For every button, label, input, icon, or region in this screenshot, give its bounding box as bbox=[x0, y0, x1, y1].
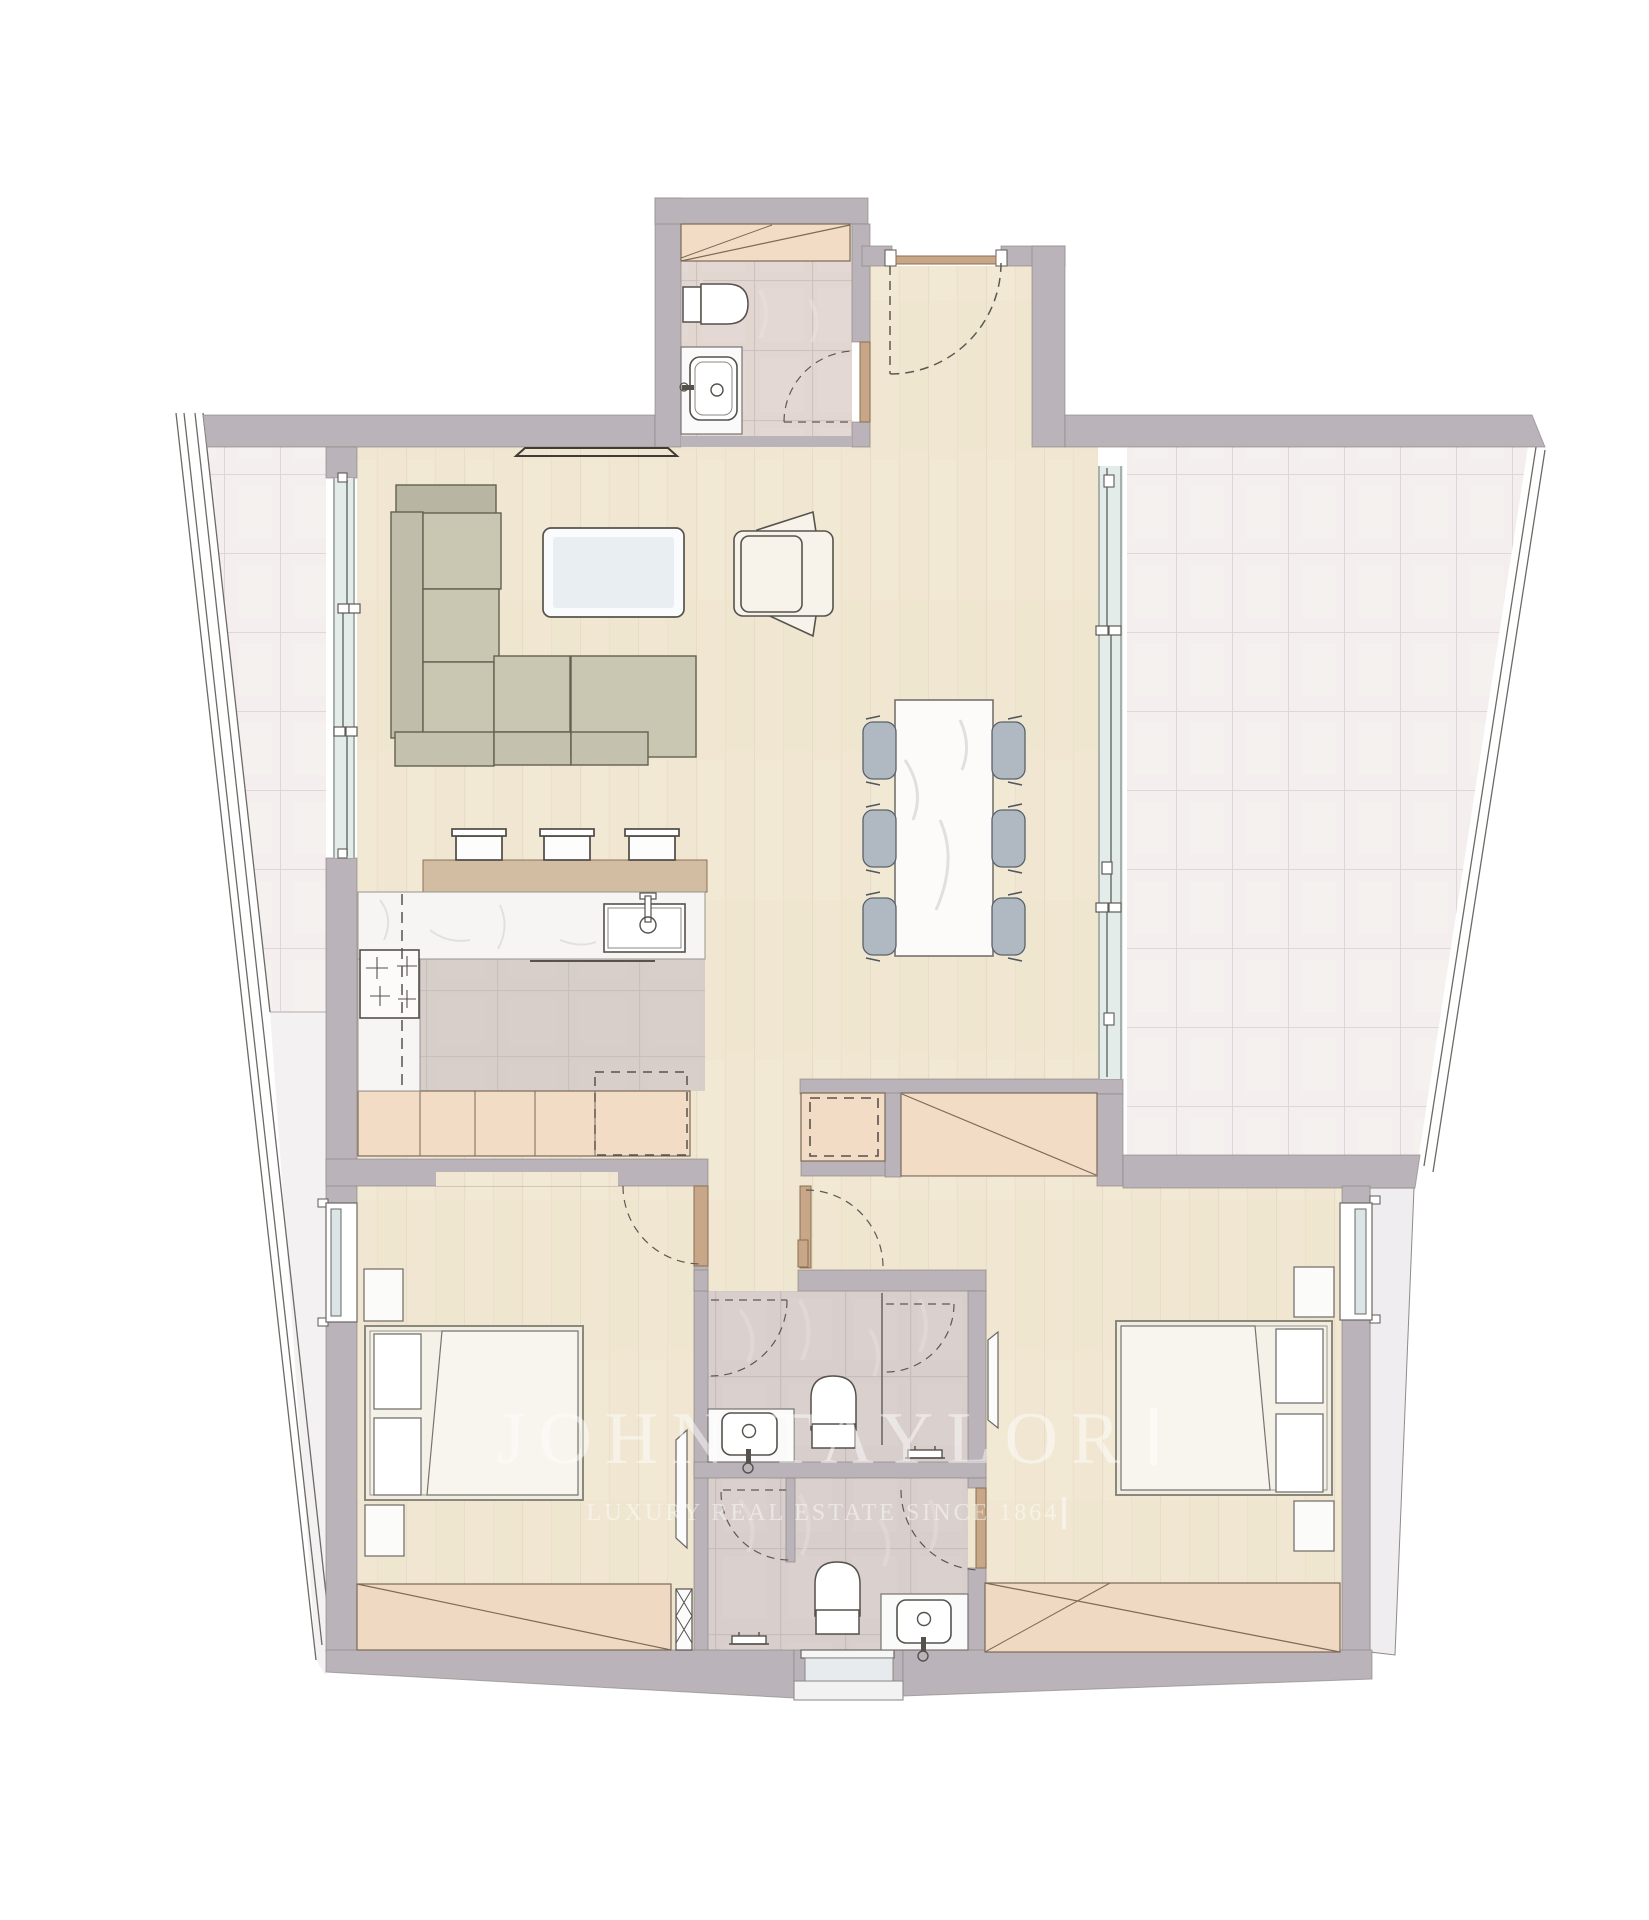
svg-text:JOHN TAYLOR: JOHN TAYLOR bbox=[497, 1398, 1134, 1480]
svg-text:LUXURY REAL ESTATE SINCE 1864: LUXURY REAL ESTATE SINCE 1864 bbox=[587, 1500, 1060, 1526]
